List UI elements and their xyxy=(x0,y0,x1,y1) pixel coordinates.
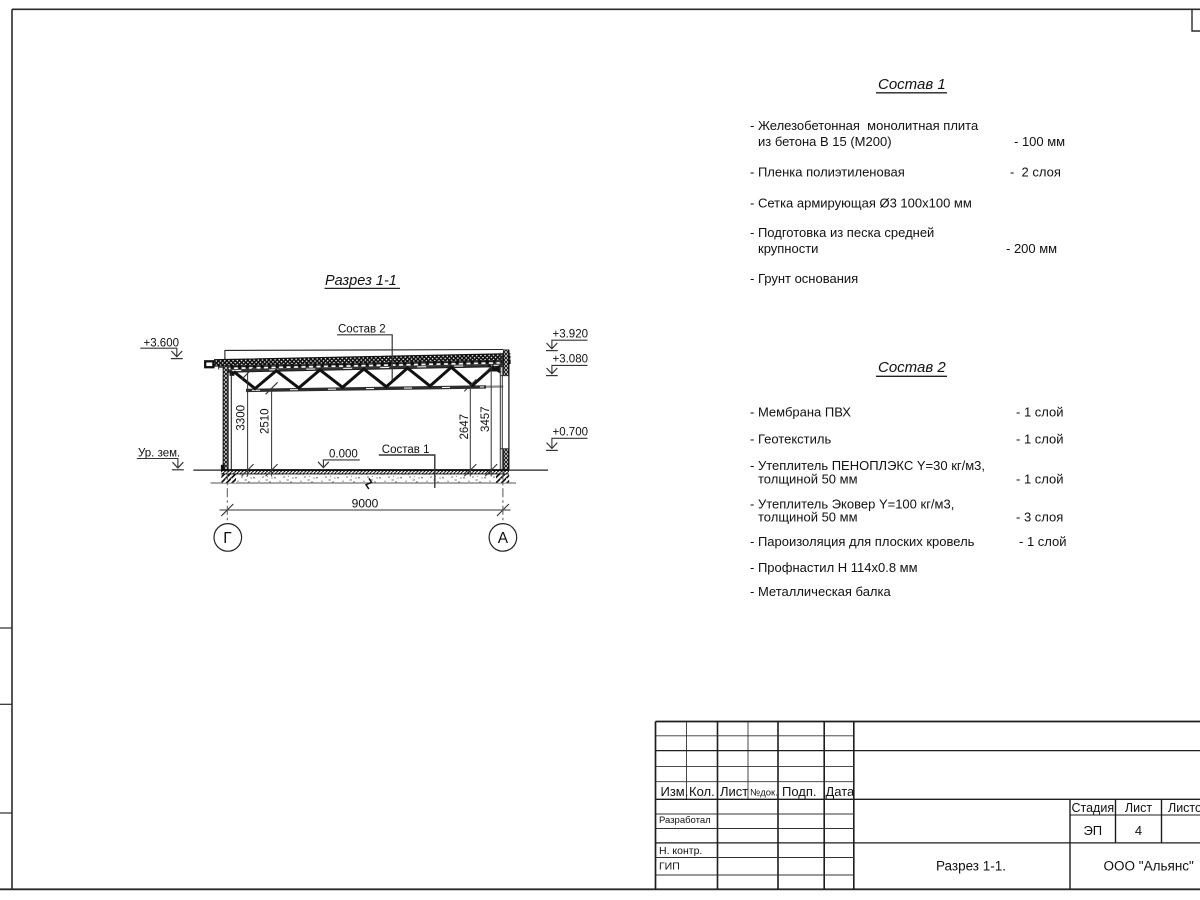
svg-text:Листов: Листов xyxy=(1168,801,1200,815)
svg-text:- 1 слой: - 1 слой xyxy=(1016,405,1064,420)
svg-text:Изм.: Изм. xyxy=(661,784,689,799)
svg-text:9000: 9000 xyxy=(352,497,379,511)
svg-text:ЭП: ЭП xyxy=(1083,823,1102,838)
svg-text:+3.600: +3.600 xyxy=(144,337,180,349)
svg-text:+3.920: +3.920 xyxy=(553,329,589,341)
svg-text:Ур. зем.: Ур. зем. xyxy=(138,448,180,460)
svg-text:- Грунт основания: - Грунт основания xyxy=(750,271,858,286)
svg-text:- 3 слоя: - 3 слоя xyxy=(1016,510,1063,525)
svg-text:- Геотекстиль: - Геотекстиль xyxy=(750,432,831,447)
svg-text:- 1 слой: - 1 слой xyxy=(1016,432,1064,447)
svg-text:- Металлическая балка: - Металлическая балка xyxy=(750,584,891,599)
svg-text:Состав 2: Состав 2 xyxy=(878,359,946,376)
svg-text:- Железобетонная монолитная п: - Железобетонная монолитная плита xyxy=(750,118,979,133)
svg-text:толщиной 50 мм: толщиной 50 мм xyxy=(758,472,858,487)
svg-text:Подп.: Подп. xyxy=(782,784,817,799)
svg-text:- Пленка полиэтиленовая: - Пленка полиэтиленовая xyxy=(750,165,905,180)
svg-text:Кол.: Кол. xyxy=(689,784,715,799)
svg-text:Г: Г xyxy=(223,530,232,547)
svg-text:толщиной 50 мм: толщиной 50 мм xyxy=(758,510,858,525)
svg-text:Дата: Дата xyxy=(826,784,856,799)
svg-text:- Мембрана ПВХ: - Мембрана ПВХ xyxy=(750,405,851,420)
svg-text:А: А xyxy=(498,530,509,547)
svg-text:2647: 2647 xyxy=(459,414,471,440)
svg-text:Состав 1: Состав 1 xyxy=(878,76,946,93)
svg-text:Разрез 1-1: Разрез 1-1 xyxy=(325,273,397,289)
svg-text:- Пароизоляция для плоских кро: - Пароизоляция для плоских кровель xyxy=(750,534,975,549)
svg-text:- 100 мм: - 100 мм xyxy=(1014,134,1065,149)
svg-text:Состав 2: Состав 2 xyxy=(338,323,386,335)
svg-text:3457: 3457 xyxy=(480,406,492,432)
svg-text:ООО "Альянс": ООО "Альянс" xyxy=(1104,859,1194,874)
svg-text:+0.700: +0.700 xyxy=(553,426,589,438)
svg-text:из бетона В 15 (М200): из бетона В 15 (М200) xyxy=(758,134,892,149)
svg-text:0.000: 0.000 xyxy=(329,449,358,461)
svg-text:- Подготовка из песка средней: - Подготовка из песка средней xyxy=(750,225,934,240)
svg-text:Разрез 1-1.: Разрез 1-1. xyxy=(936,859,1006,874)
svg-text:- Сетка армирующая Ø3 100х100: - Сетка армирующая Ø3 100х100 мм xyxy=(750,196,972,211)
svg-text:- 2 слоя: - 2 слоя xyxy=(1010,165,1061,180)
svg-text:Лист: Лист xyxy=(720,784,748,799)
svg-text:Лист: Лист xyxy=(1125,801,1152,815)
svg-text:№док.: №док. xyxy=(750,788,778,799)
svg-text:4: 4 xyxy=(1135,823,1142,838)
svg-text:Н. контр.: Н. контр. xyxy=(659,845,702,857)
svg-text:- Профнастил Н 114х0.8 мм: - Профнастил Н 114х0.8 мм xyxy=(750,560,918,575)
svg-text:Состав 1: Состав 1 xyxy=(382,444,430,456)
svg-text:Стадия: Стадия xyxy=(1071,801,1114,815)
svg-text:3300: 3300 xyxy=(236,405,248,431)
svg-text:- 1 слой: - 1 слой xyxy=(1016,472,1064,487)
svg-text:2510: 2510 xyxy=(260,408,272,434)
svg-text:- 1 слой: - 1 слой xyxy=(1019,534,1067,549)
svg-text:крупности: крупности xyxy=(758,241,818,256)
svg-text:+3.080: +3.080 xyxy=(553,354,589,366)
svg-text:- 200 мм: - 200 мм xyxy=(1006,241,1057,256)
svg-text:ГИП: ГИП xyxy=(659,861,680,873)
svg-text:Разработал: Разработал xyxy=(659,815,711,826)
